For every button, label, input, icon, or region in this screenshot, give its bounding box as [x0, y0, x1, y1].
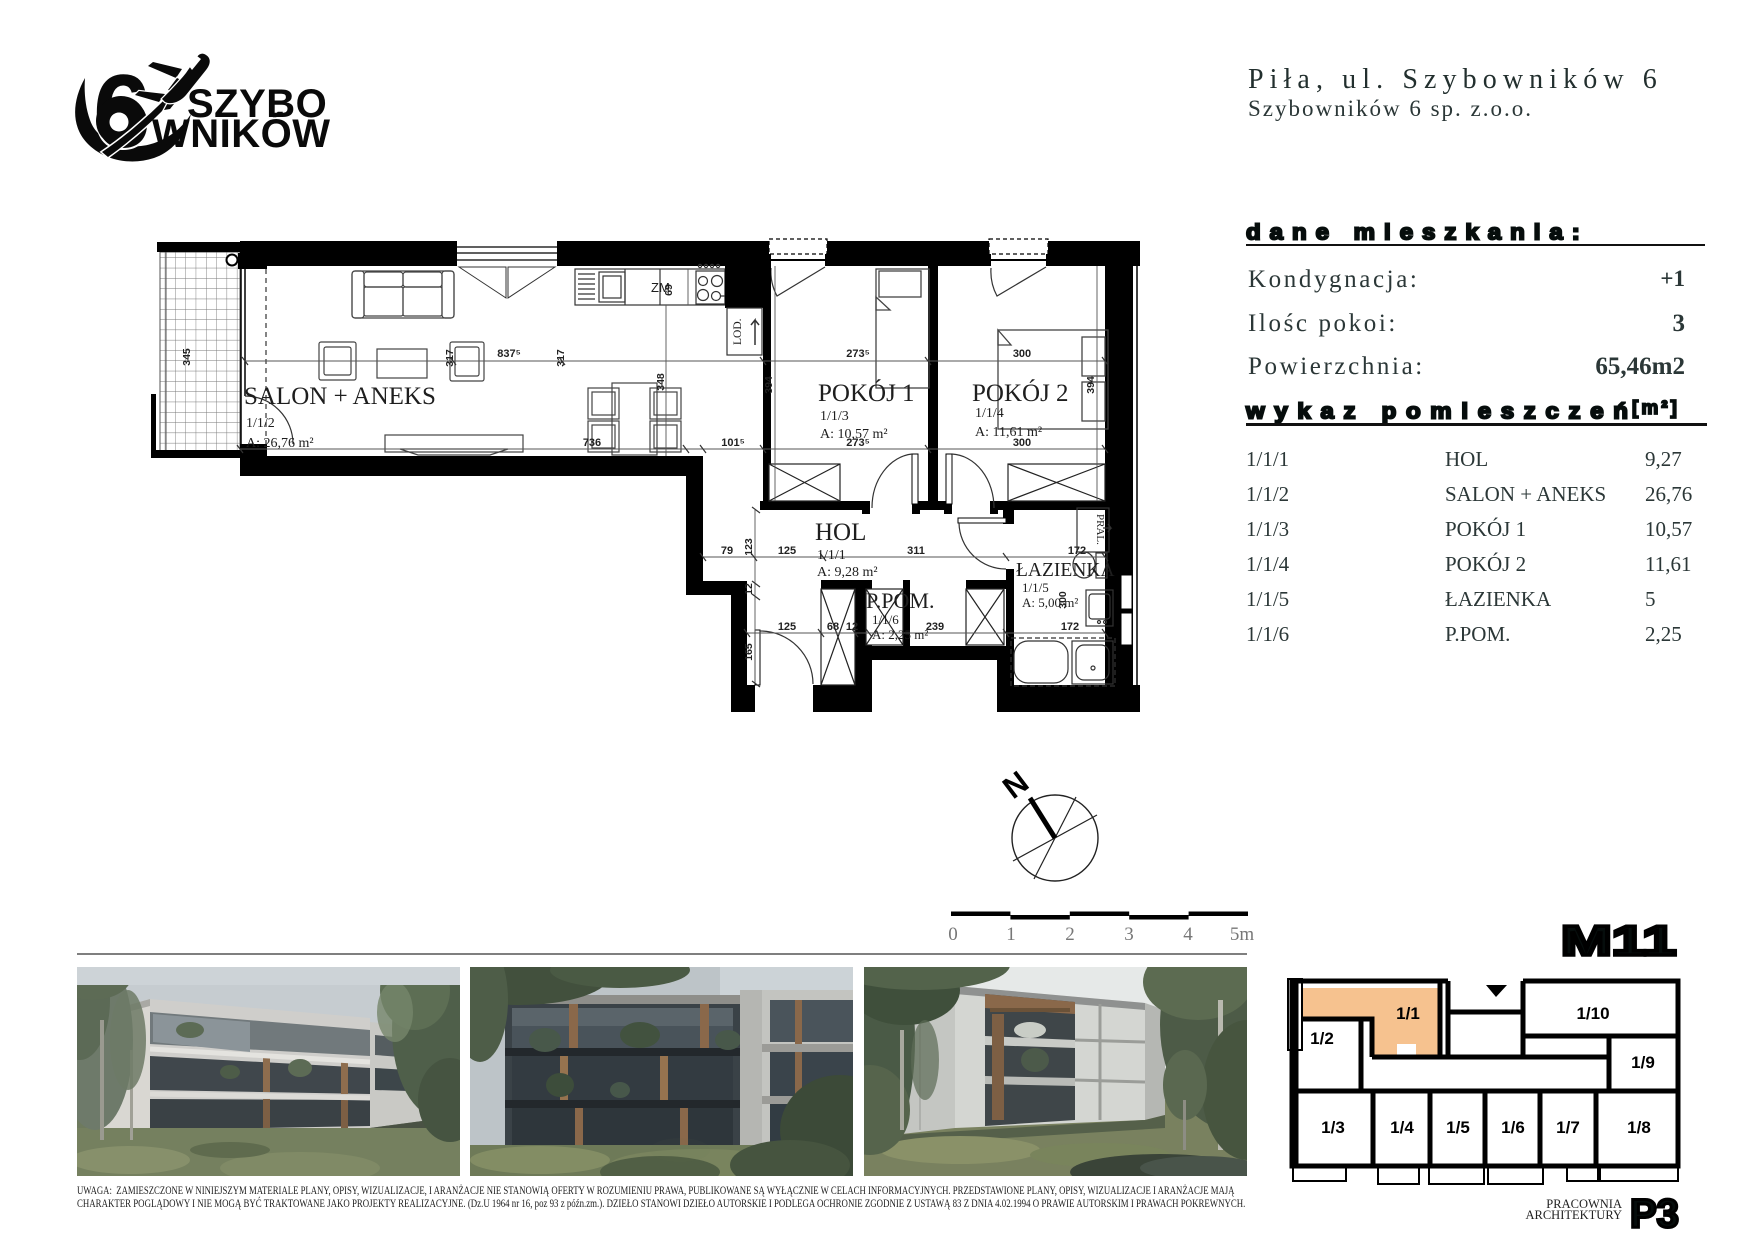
- svg-text:1/1/3: 1/1/3: [820, 409, 849, 424]
- svg-text:300: 300: [1013, 348, 1031, 360]
- svg-text:172: 172: [1061, 621, 1079, 633]
- svg-text:125: 125: [778, 545, 796, 557]
- svg-text:1/1/6: 1/1/6: [872, 612, 899, 627]
- svg-text:101⁵: 101⁵: [721, 437, 745, 449]
- svg-text:1/1/5: 1/1/5: [1022, 580, 1049, 595]
- svg-text:123: 123: [743, 538, 755, 556]
- svg-text:172: 172: [1068, 545, 1086, 557]
- svg-text:1/7: 1/7: [1556, 1118, 1580, 1137]
- svg-text:ZM: ZM: [651, 280, 670, 295]
- svg-text:SALON + ANEKS: SALON + ANEKS: [244, 383, 436, 410]
- svg-text:1/9: 1/9: [1631, 1053, 1655, 1072]
- svg-text:394: 394: [1085, 376, 1097, 394]
- svg-text:A: 26,76 m²: A: 26,76 m²: [246, 436, 314, 451]
- svg-text:4: 4: [1183, 924, 1193, 945]
- svg-text:12: 12: [743, 583, 755, 595]
- svg-text:1/8: 1/8: [1627, 1118, 1651, 1137]
- svg-text:POKÓJ 2: POKÓJ 2: [972, 379, 1069, 407]
- svg-text:125: 125: [778, 621, 796, 633]
- svg-text:1/1/4: 1/1/4: [975, 406, 1004, 421]
- svg-text:HOL: HOL: [815, 519, 866, 546]
- svg-text:345: 345: [181, 348, 193, 366]
- svg-text:P.POM.: P.POM.: [866, 588, 934, 613]
- svg-text:0: 0: [948, 924, 958, 945]
- svg-text:837⁵: 837⁵: [497, 348, 521, 360]
- svg-text:5m: 5m: [1230, 924, 1255, 945]
- svg-text:2: 2: [1065, 924, 1075, 945]
- svg-text:1/1/1: 1/1/1: [817, 548, 846, 563]
- svg-text:A: 9,28 m²: A: 9,28 m²: [817, 565, 878, 580]
- svg-text:A: 11,61 m²: A: 11,61 m²: [975, 425, 1042, 440]
- svg-text:1/10: 1/10: [1576, 1004, 1609, 1023]
- svg-text:LOD.: LOD.: [732, 318, 744, 345]
- svg-text:317: 317: [555, 349, 567, 367]
- svg-text:736: 736: [583, 437, 601, 449]
- svg-text:1/5: 1/5: [1446, 1118, 1470, 1137]
- svg-text:1/1/2: 1/1/2: [246, 416, 275, 431]
- svg-text:ŁAZIENKA: ŁAZIENKA: [1016, 560, 1115, 581]
- svg-text:68: 68: [827, 621, 839, 633]
- svg-text:A: 2,25 m²: A: 2,25 m²: [872, 627, 928, 642]
- svg-text:1/1: 1/1: [1396, 1004, 1420, 1023]
- svg-text:12: 12: [846, 621, 858, 633]
- svg-text:PRAL.: PRAL.: [1094, 514, 1106, 545]
- svg-text:WNIKÓW: WNIKÓW: [152, 110, 331, 156]
- svg-text:1: 1: [1006, 924, 1016, 945]
- svg-text:348: 348: [655, 373, 667, 391]
- svg-text:311: 311: [907, 545, 925, 557]
- svg-text:165: 165: [743, 643, 755, 661]
- svg-text:A: 10,57 m²: A: 10,57 m²: [820, 427, 888, 442]
- svg-text:394: 394: [763, 376, 775, 394]
- svg-text:1/2: 1/2: [1310, 1029, 1334, 1048]
- svg-text:A: 5,00 m²: A: 5,00 m²: [1022, 595, 1078, 610]
- svg-text:239: 239: [926, 621, 944, 633]
- svg-text:1/4: 1/4: [1390, 1118, 1414, 1137]
- svg-text:3: 3: [1124, 924, 1134, 945]
- svg-text:1/3: 1/3: [1321, 1118, 1345, 1137]
- svg-text:POKÓJ 1: POKÓJ 1: [818, 379, 915, 407]
- svg-text:273⁵: 273⁵: [846, 348, 870, 360]
- svg-text:79: 79: [721, 545, 733, 557]
- svg-text:1/6: 1/6: [1501, 1118, 1525, 1137]
